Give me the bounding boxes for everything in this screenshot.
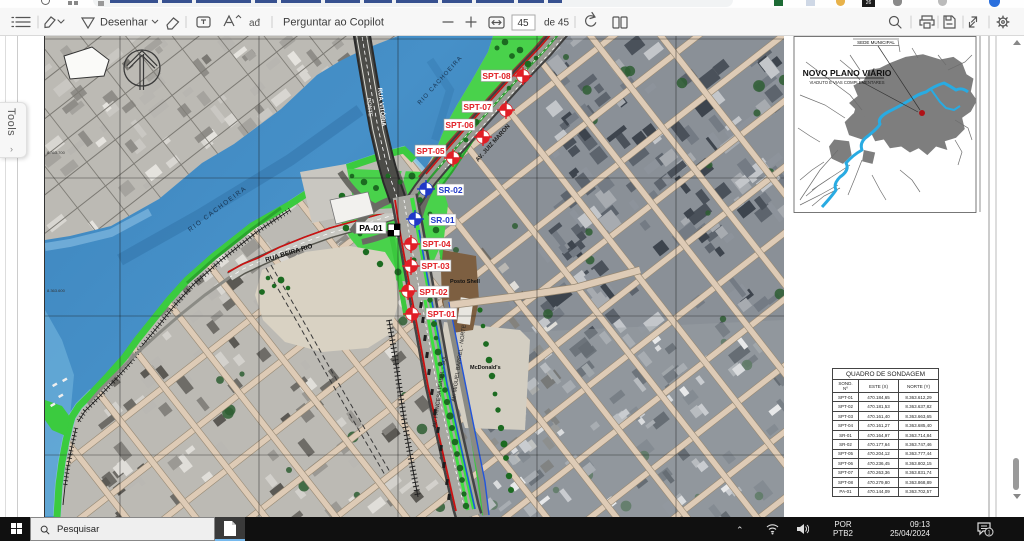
- svg-text:SPT-01: SPT-01: [427, 309, 456, 319]
- svg-text:McDonald's: McDonald's: [470, 365, 501, 371]
- svg-text:SPT-05: SPT-05: [416, 146, 445, 156]
- svg-text:SEDE MUNICIPAL: SEDE MUNICIPAL: [857, 40, 895, 45]
- svg-text:PA-01: PA-01: [359, 223, 383, 233]
- svg-text:Perguntar ao Copilot: Perguntar ao Copilot: [283, 17, 384, 29]
- svg-text:SR-02: SR-02: [438, 185, 462, 195]
- svg-text:VIADUTO E VIAS COMPLEMENTARES: VIADUTO E VIAS COMPLEMENTARES: [809, 80, 884, 85]
- svg-text:de 45: de 45: [544, 18, 569, 29]
- svg-text:SPT-06: SPT-06: [445, 120, 474, 130]
- svg-text:8.363.600: 8.363.600: [47, 288, 66, 293]
- svg-text:Posto Shell: Posto Shell: [450, 279, 480, 285]
- svg-text:SPT-03: SPT-03: [421, 261, 450, 271]
- svg-text:8.363.700: 8.363.700: [47, 150, 66, 155]
- svg-text:SR-01: SR-01: [430, 215, 454, 225]
- svg-text:SPT-02: SPT-02: [419, 287, 448, 297]
- svg-text:45: 45: [517, 18, 529, 29]
- svg-text:SPT-08: SPT-08: [482, 71, 511, 81]
- svg-text:SPT-07: SPT-07: [463, 102, 492, 112]
- svg-text:ađ: ađ: [249, 18, 261, 29]
- svg-text:NOVO PLANO VIÁRIO: NOVO PLANO VIÁRIO: [803, 68, 892, 78]
- svg-text:SPT-04: SPT-04: [422, 239, 451, 249]
- svg-text:Desenhar: Desenhar: [100, 17, 148, 29]
